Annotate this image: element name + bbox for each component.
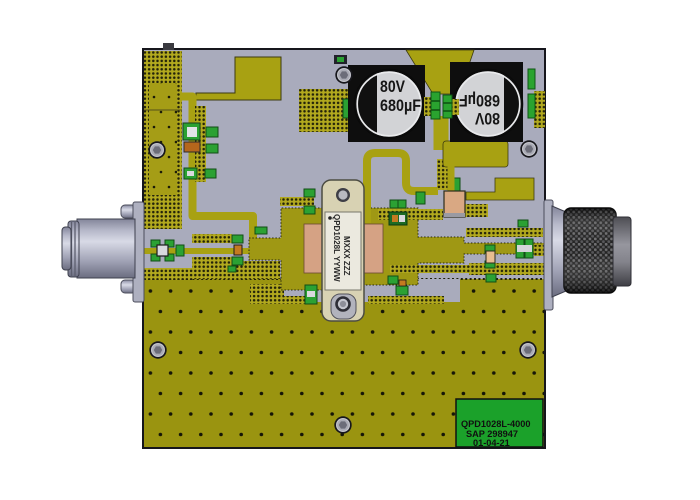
svg-text:680µF: 680µF [459, 91, 500, 109]
svg-text:680µF: 680µF [380, 97, 421, 115]
svg-text:80V: 80V [380, 78, 405, 96]
svg-text:01-04-21: 01-04-21 [473, 438, 510, 448]
svg-text:QPD1028L-4000: QPD1028L-4000 [461, 419, 530, 429]
svg-text:80V: 80V [475, 109, 500, 127]
svg-text:QPD1028L YYWW: QPD1028L YYWW [332, 214, 341, 282]
svg-text:MXXX ZZZ: MXXX ZZZ [342, 236, 351, 276]
